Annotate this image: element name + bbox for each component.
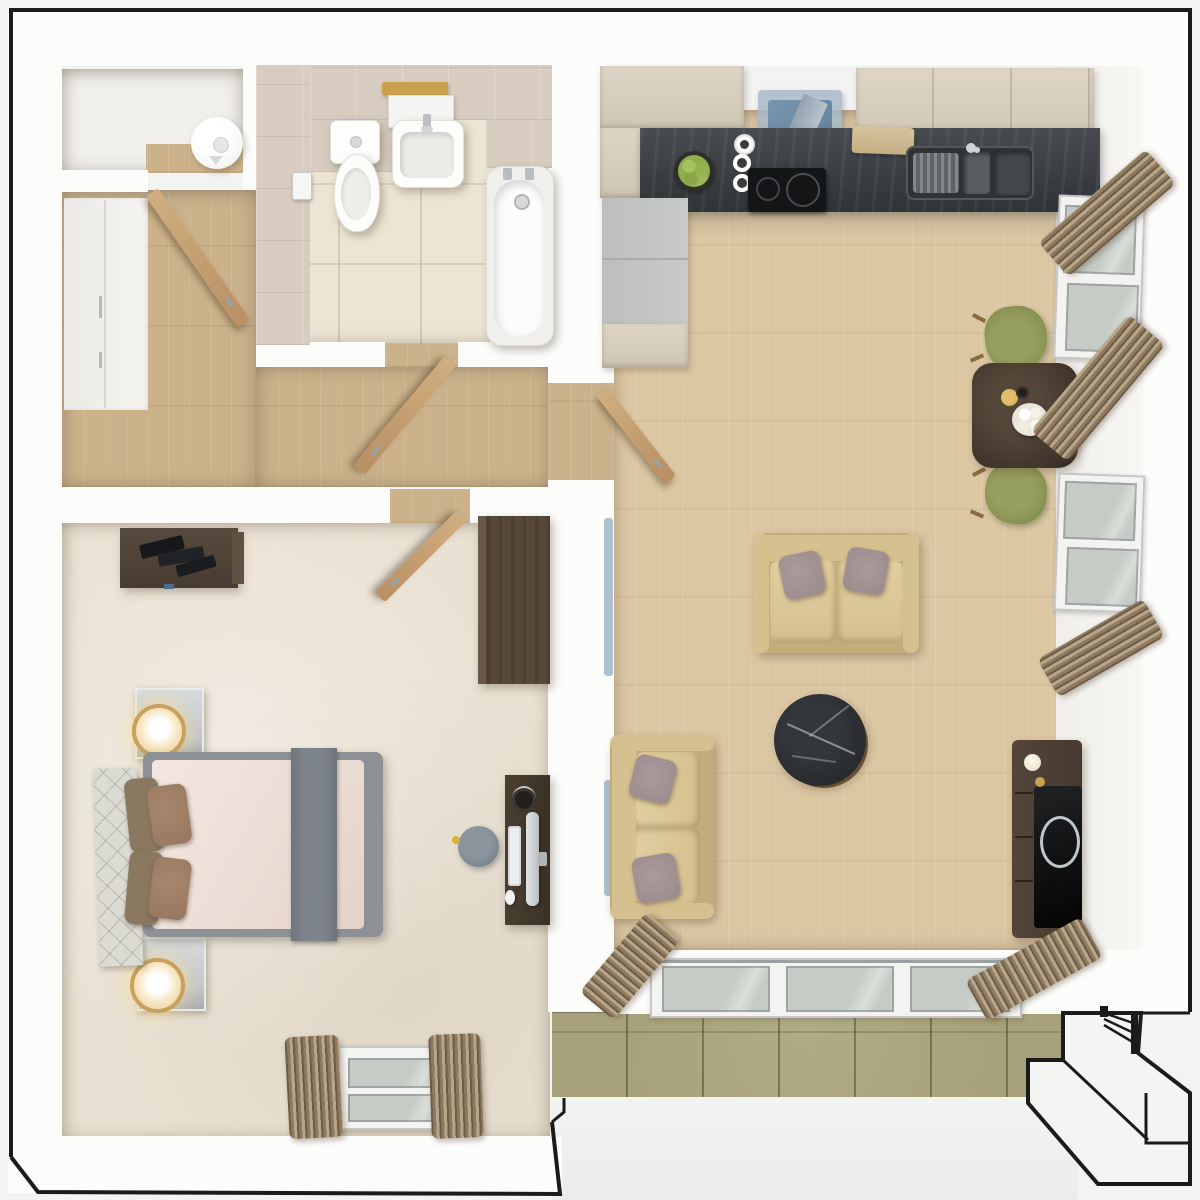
fridge-seam	[602, 258, 688, 260]
wall-bath-bottom-left	[256, 342, 385, 367]
window-right-2-pane-b	[1065, 547, 1139, 607]
lamp-top	[132, 704, 186, 758]
sliding-door-pane-1	[662, 966, 770, 1012]
curtain-bedroom-right	[428, 1033, 484, 1139]
balcony-parapet	[552, 1097, 1078, 1200]
stool-tag	[452, 836, 460, 844]
wall-left	[8, 8, 62, 1193]
radiator-1	[604, 518, 613, 676]
marble-vein-3	[792, 755, 836, 763]
wooden-tray	[382, 82, 448, 95]
bath-tile-above-tub	[486, 120, 552, 168]
cutting-board	[852, 126, 915, 155]
water-heater-valve	[209, 156, 223, 165]
curtain-bedroom-left	[284, 1035, 343, 1140]
bath-tap-1	[503, 168, 512, 180]
wall-bedroom-bottom	[8, 1136, 562, 1193]
washbasin-bowl	[400, 132, 454, 178]
bed-runner	[291, 748, 337, 941]
sofa-pillow-2	[841, 546, 890, 597]
burner-large	[786, 173, 820, 207]
builtin-wardrobe-seam	[104, 200, 106, 408]
kitchen-upper-cabinet-left	[600, 66, 744, 130]
burner-small	[756, 177, 780, 201]
keyboard	[508, 826, 521, 886]
sink-basin-2	[993, 151, 1030, 195]
sliding-door-rail	[652, 960, 1020, 963]
toilet-seat	[341, 168, 371, 220]
sofa-top-arm-left	[753, 533, 769, 653]
sofa-left-arm-bottom	[610, 903, 714, 919]
dresser-blue-chip	[164, 584, 174, 589]
apples	[678, 155, 710, 187]
sofa-left-arm-top	[610, 735, 714, 751]
wardrobe-handle-2	[99, 352, 102, 368]
bed-pillow-top-1	[146, 783, 193, 848]
sink-basin-1	[963, 152, 990, 194]
sofa-left	[610, 735, 714, 919]
toilet-flush-button	[350, 136, 362, 148]
kitchen-tall-unit-side	[600, 128, 642, 198]
balcony-railing	[1104, 1013, 1136, 1044]
sofa-left-back	[612, 739, 636, 915]
marble-vein-2	[809, 705, 850, 737]
bedroom-wardrobe	[478, 516, 550, 684]
wall-closet-bottom	[62, 170, 148, 192]
gold-dot	[1035, 777, 1045, 787]
wall-hall-bedroom-left	[8, 487, 390, 523]
balcony-grout-vertical	[552, 1012, 1063, 1097]
dresser-side-face	[232, 532, 244, 584]
sink-faucet	[966, 143, 976, 153]
stool	[458, 826, 499, 867]
dark-cup	[1016, 386, 1029, 399]
sliding-door-pane-2	[786, 966, 894, 1012]
toilet-roll-holder	[292, 172, 312, 200]
builtin-wardrobe	[64, 198, 148, 410]
coffee-table-marble	[774, 694, 866, 786]
bath-tile-wall-left	[256, 65, 310, 345]
sofa-top-arm-right	[903, 533, 919, 653]
water-heater-cap	[213, 137, 229, 153]
fridge	[602, 198, 688, 324]
sink-drainboard	[913, 153, 959, 193]
kitchen-lower-cabinet-band	[643, 212, 1100, 238]
tv-drawer-line-1	[1015, 792, 1033, 794]
lamp-bottom	[130, 958, 185, 1013]
bed-pillow-top-2	[147, 856, 192, 921]
monitor-stand	[538, 852, 547, 866]
sofa-pillow-4	[630, 852, 681, 905]
bath-drain	[514, 194, 530, 210]
tv-drawer-line-3	[1015, 880, 1033, 882]
tv-mount-ring	[1040, 816, 1080, 868]
window-right-2-pane-a	[1063, 481, 1137, 541]
wall-closet-bath-divider	[243, 8, 256, 190]
tv-drawer-line-2	[1015, 836, 1033, 838]
basin-faucet-head	[421, 126, 433, 132]
sofa-pillow-1	[777, 549, 827, 601]
floor-plan-canvas	[0, 0, 1200, 1200]
wardrobe-handle-1	[99, 296, 102, 318]
headphones	[512, 786, 536, 812]
sofa-top	[753, 533, 919, 653]
speaker-dot	[1024, 754, 1041, 771]
kitchen-base-unit	[602, 324, 688, 368]
mouse	[505, 890, 515, 905]
bath-tap-2	[525, 168, 534, 180]
cup-stack-1	[734, 134, 755, 155]
